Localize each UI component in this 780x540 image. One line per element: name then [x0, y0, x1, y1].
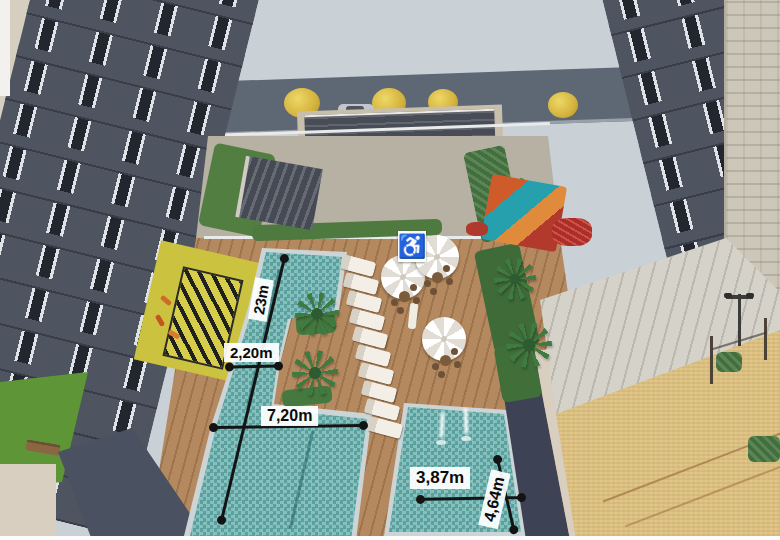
wheelchair-glyph: ♿ [398, 233, 427, 260]
dimension-label-main-pool-width: 7,20m [261, 406, 318, 426]
palm-tree [494, 258, 536, 300]
patio-table [432, 272, 443, 283]
image-edge [0, 0, 10, 96]
fountain-jet [464, 408, 469, 434]
palm-tree [506, 322, 552, 368]
entry-pad [0, 464, 56, 540]
yellow-tree [548, 92, 578, 118]
net-post [710, 336, 713, 384]
pergola [235, 156, 323, 231]
image-bottom-border [0, 536, 780, 540]
flower-bed [466, 222, 488, 236]
shrub [748, 436, 780, 462]
floodlight [724, 293, 732, 298]
light-pole [738, 294, 741, 346]
net-post [764, 318, 767, 360]
flower-bed [552, 218, 592, 246]
floodlight [746, 293, 754, 298]
dimension-label-kids-pool-width: 3,87m [410, 467, 470, 489]
shrub [716, 352, 742, 372]
dimension-label-lap-lane-width: 2,20m [224, 343, 279, 362]
architectural-render: ♿ 23m 2,20m 7,20m 3,87m 4,64m [0, 0, 780, 540]
wheelchair-accessibility-icon: ♿ [398, 231, 426, 262]
patio-table [440, 355, 451, 366]
patio-table [399, 291, 410, 302]
fountain-splash [436, 440, 446, 445]
palm-tree [295, 292, 339, 336]
fountain-splash [461, 436, 471, 441]
palm-tree [292, 350, 338, 396]
